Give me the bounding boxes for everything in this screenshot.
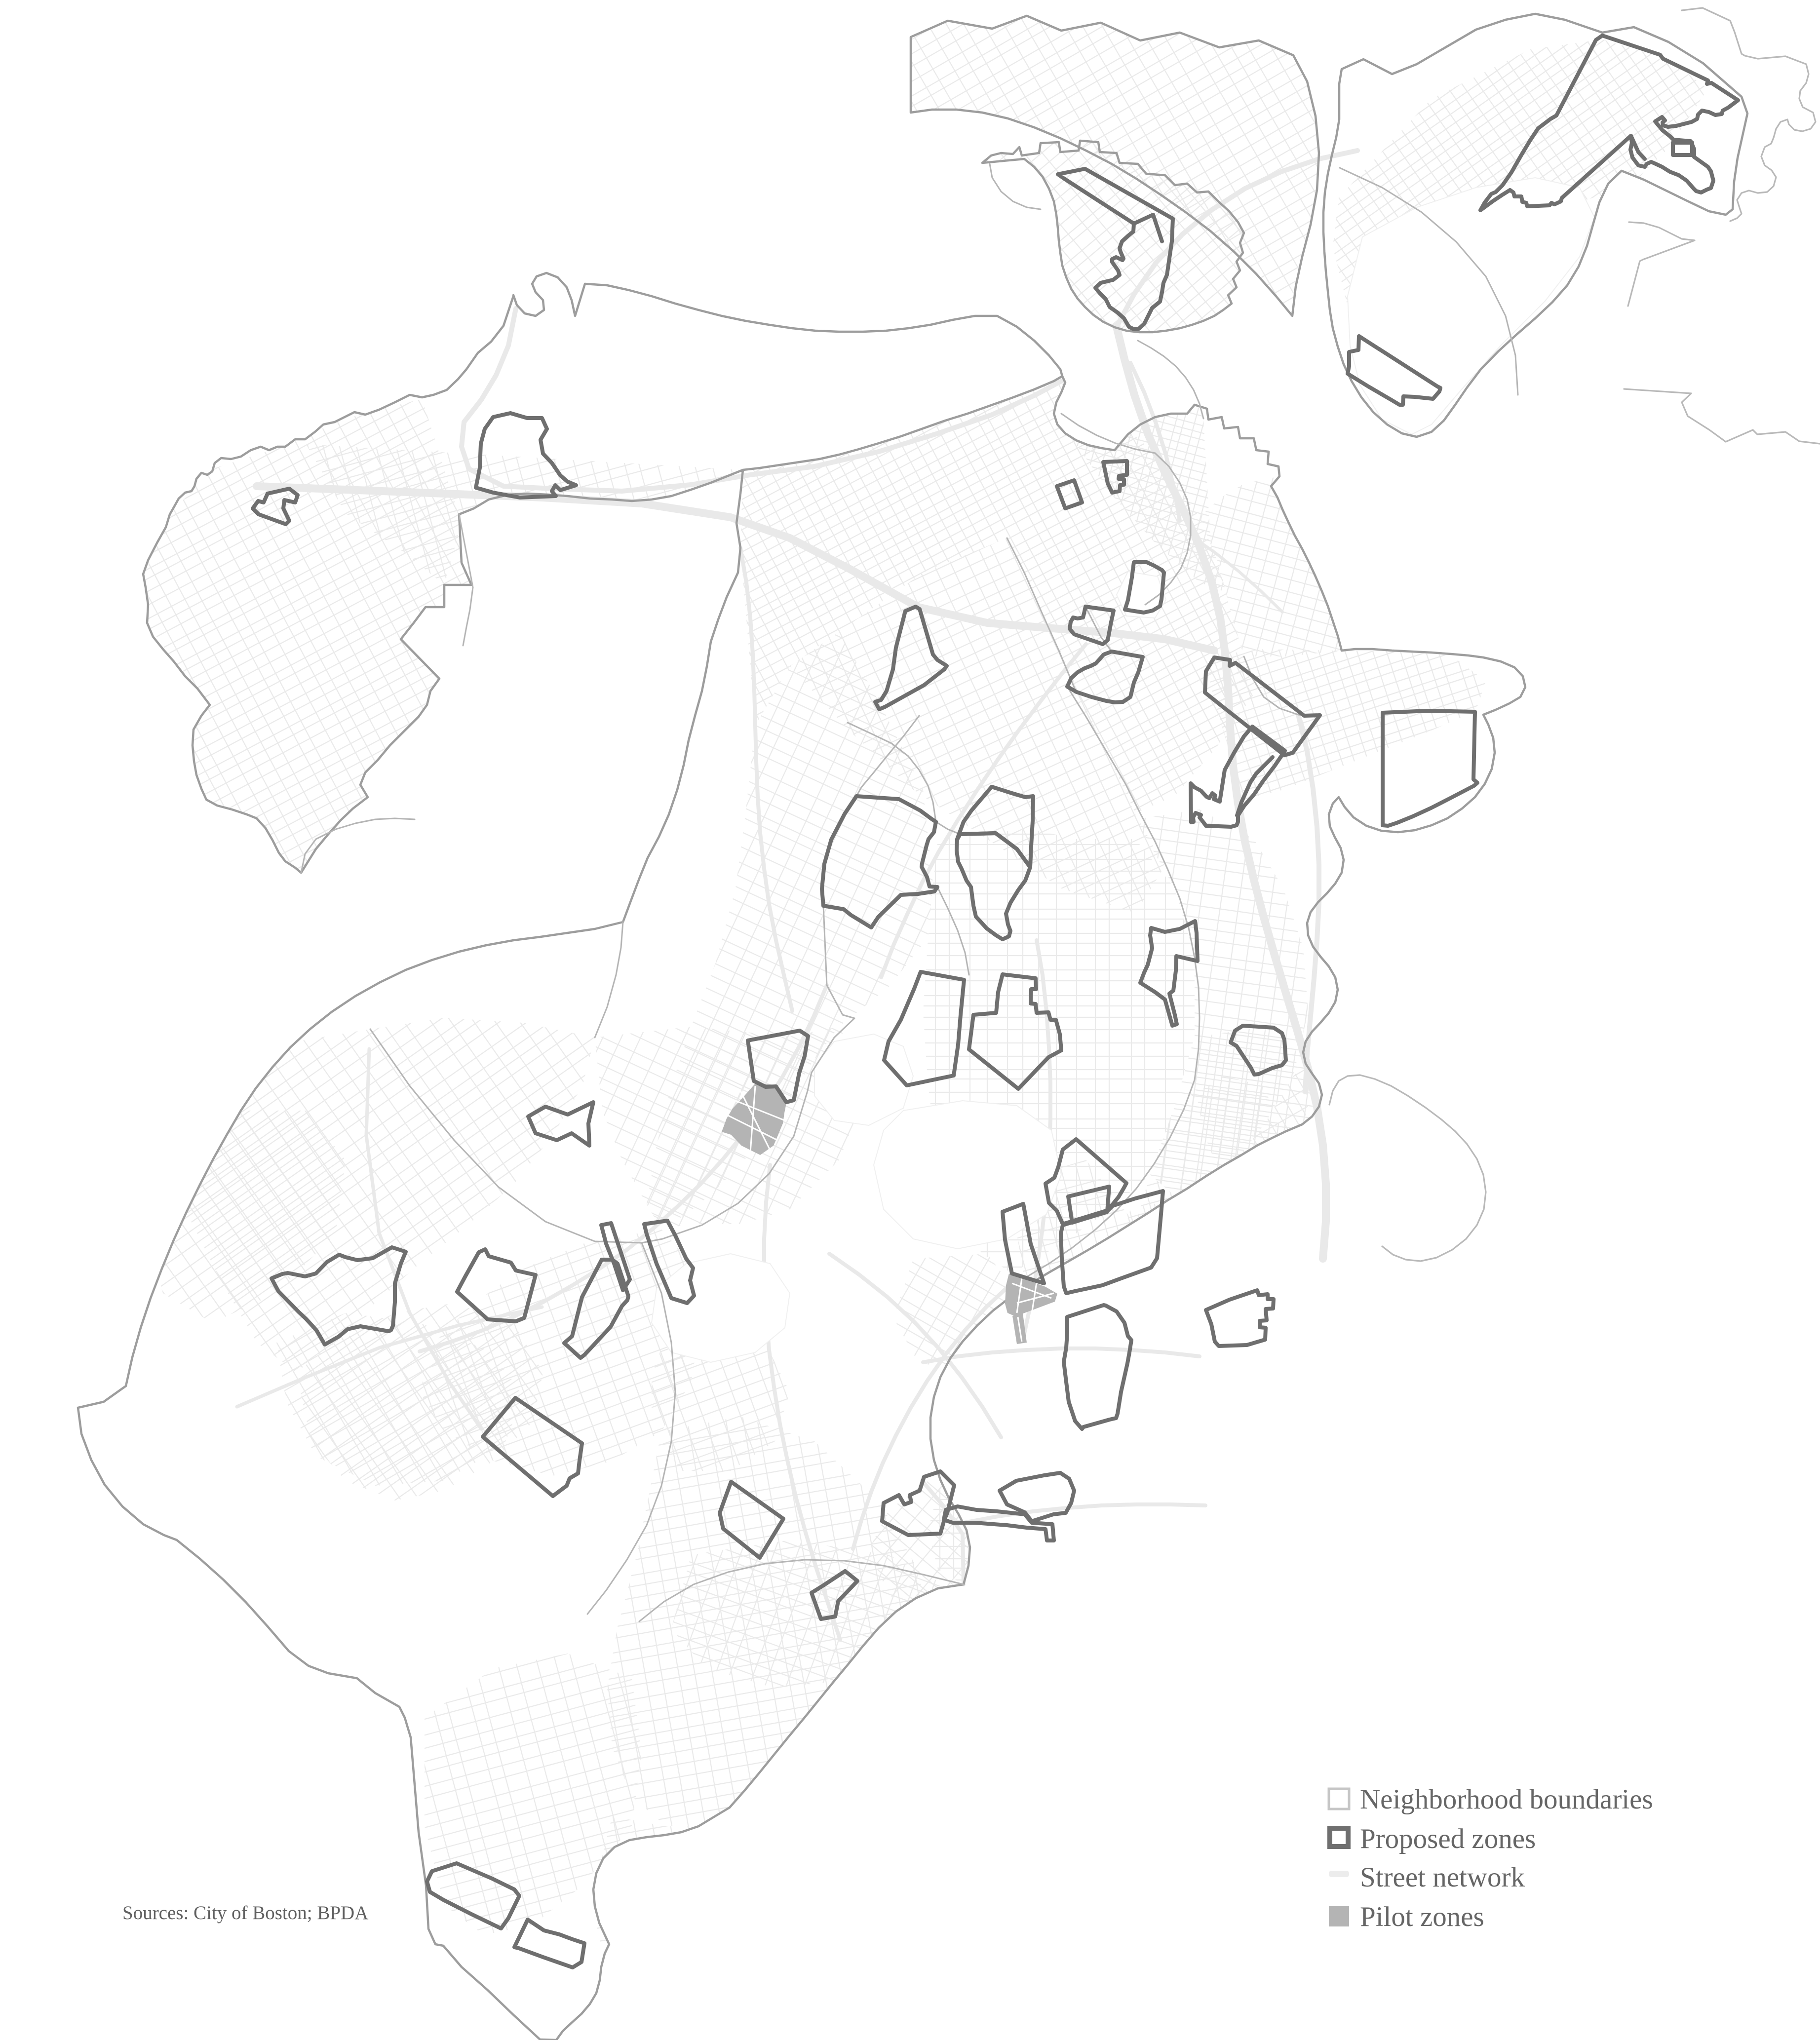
svg-text:Neighborhood boundaries: Neighborhood boundaries (1360, 1784, 1653, 1815)
svg-text:Proposed zones: Proposed zones (1360, 1823, 1536, 1854)
svg-text:Street network: Street network (1360, 1862, 1525, 1893)
svg-text:Pilot zones: Pilot zones (1360, 1901, 1484, 1932)
svg-text:Sources: City of Boston; BPDA: Sources: City of Boston; BPDA (122, 1902, 368, 1924)
